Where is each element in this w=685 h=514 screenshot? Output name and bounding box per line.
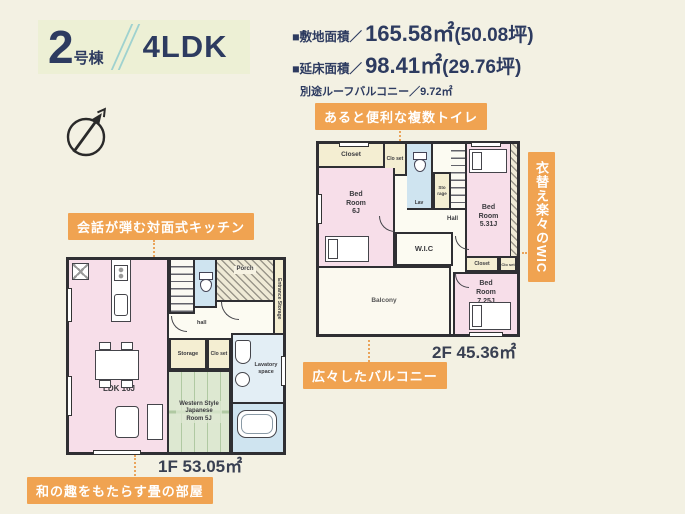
stairs-1f xyxy=(169,260,195,314)
door-arc xyxy=(221,302,239,320)
layout-type: 4LDK xyxy=(143,29,228,65)
dining-table xyxy=(95,350,139,380)
room-label: Storage xyxy=(178,351,198,358)
bed-icon xyxy=(469,302,511,330)
cabinet xyxy=(147,404,163,440)
room-label-hall-2f: Hall xyxy=(447,216,458,224)
refrigerator-icon xyxy=(72,263,89,280)
stove-icon xyxy=(114,265,128,281)
room-label: Clo set xyxy=(387,156,404,162)
floor1-plan: LDK 16J Porch Entrance Storage hall Stor… xyxy=(66,257,286,455)
window-marker xyxy=(67,288,72,322)
area-figures: ■敷地面積／ 165.58㎡ (50.08坪) ■延床面積／ 98.41㎡ (2… xyxy=(292,16,534,99)
window-marker xyxy=(281,356,286,386)
room-storage-2f: Sto rage xyxy=(433,172,451,210)
room-label: Clo set xyxy=(501,262,514,267)
low-table xyxy=(115,406,139,438)
window-marker xyxy=(67,376,72,416)
room-label: Clo set xyxy=(211,351,228,357)
room-closet-2f-top: Closet xyxy=(319,144,385,168)
chair-icon xyxy=(99,342,111,350)
floorplan-flyer: 2 号棟 4LDK ■敷地面積／ 165.58㎡ (50.08坪) ■延床面積／… xyxy=(0,0,685,514)
room-label: Bed Room 5.31J xyxy=(475,204,503,230)
bed-icon xyxy=(469,149,507,173)
room-label: Porch xyxy=(234,266,255,274)
floor2-plan: Closet Clo set Bed Room 6J Lav Sto rage … xyxy=(316,141,520,337)
room-label: Closet xyxy=(474,261,489,267)
land-area-label: ■敷地面積／ xyxy=(292,26,362,45)
floor2-area-label: 2F 45.36㎡ xyxy=(432,338,516,363)
chair-icon xyxy=(99,380,111,388)
floor-area-label: ■延床面積／ xyxy=(292,58,362,77)
toilet-icon xyxy=(413,152,427,172)
door-arc xyxy=(171,316,187,332)
window-marker xyxy=(469,332,503,337)
slash-divider-icon xyxy=(110,24,139,70)
room-balcony-2f: Balcony xyxy=(319,266,451,334)
room-label: Balcony xyxy=(371,297,396,305)
closet-strip-2f xyxy=(510,144,517,256)
callout-toilet: あると便利な複数トイレ xyxy=(315,103,487,130)
room-label: Western Style Japanese Room 5J xyxy=(176,401,222,424)
building-suffix: 号棟 xyxy=(74,47,104,68)
floor1-area-label: 1F 53.05㎡ xyxy=(158,452,242,477)
chair-icon xyxy=(121,342,133,350)
connector-tatami xyxy=(134,455,136,476)
building-number: 2 xyxy=(48,24,74,70)
window-marker xyxy=(93,450,141,455)
floor-area-line: ■延床面積／ 98.41㎡ (29.76坪) xyxy=(292,48,534,80)
bed-icon xyxy=(325,236,369,262)
land-area-value: 165.58㎡ xyxy=(365,16,454,48)
door-arc xyxy=(455,236,469,250)
chair-icon xyxy=(121,380,133,388)
roof-balcony-note: 別途ルーフバルコニー／9.72㎡ xyxy=(300,83,534,99)
callout-kitchen: 会話が弾む対面式キッチン xyxy=(68,213,254,240)
land-area-tsubo: (50.08坪) xyxy=(454,20,533,47)
floor-area-value: 98.41㎡ xyxy=(365,48,442,80)
washbasin-icon xyxy=(235,340,251,364)
room-closet-1f: Clo set xyxy=(207,338,231,370)
room-porch: Porch xyxy=(217,260,273,302)
room-closet-2f-mid: Closet xyxy=(465,256,499,272)
toilet-icon xyxy=(199,272,213,292)
connector-kitchen xyxy=(153,240,155,257)
land-area-line: ■敷地面積／ 165.58㎡ (50.08坪) xyxy=(292,16,534,48)
room-label: W.I.C xyxy=(415,244,433,253)
connector-balcony xyxy=(368,340,370,362)
room-label: Closet xyxy=(341,151,361,159)
window-marker xyxy=(471,142,501,147)
room-closet-2f-mid-small: Clo set xyxy=(499,256,517,272)
floor-area-tsubo: (29.76坪) xyxy=(442,52,521,79)
sink-icon xyxy=(114,294,128,316)
room-label: Entrance Storage xyxy=(276,278,282,319)
callout-wic: 衣替え楽々のWIC xyxy=(528,152,555,282)
window-marker xyxy=(339,142,369,147)
room-label: Lav xyxy=(415,200,424,206)
callout-tatami: 和の趣をもたらす畳の部屋 xyxy=(27,477,213,504)
room-label-hall-1f: hall xyxy=(197,320,206,327)
room-label: Sto rage xyxy=(435,185,449,196)
room-entrance-storage: Entrance Storage xyxy=(273,260,283,338)
unit-badge: 2 号棟 4LDK xyxy=(38,20,250,74)
room-label: Lavatory space xyxy=(252,362,280,376)
room-wic: W.I.C xyxy=(395,232,453,266)
compass-icon xyxy=(52,100,122,170)
room-label: Bed Room 6J xyxy=(343,191,369,217)
window-marker xyxy=(317,194,322,224)
callout-balcony: 広々したバルコニー xyxy=(303,362,447,389)
room-storage-1f: Storage xyxy=(169,338,207,370)
bathtub-icon xyxy=(237,410,277,438)
room-tatami: Western Style Japanese Room 5J xyxy=(169,370,231,452)
washing-machine-icon xyxy=(235,372,250,387)
